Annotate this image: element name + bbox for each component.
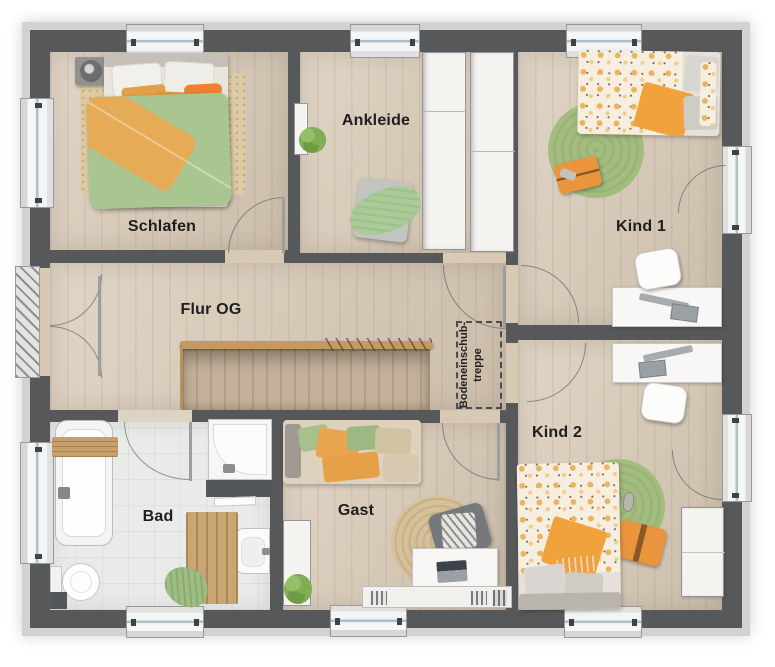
kind2-dresser [681, 507, 724, 597]
stair-railing-left [180, 345, 183, 410]
door-opening-bad [118, 410, 192, 422]
room-label-ankleide: Ankleide [342, 112, 410, 130]
bed-pillow-dotted [699, 62, 716, 126]
ankleide-plant [299, 127, 326, 153]
books [371, 591, 387, 605]
door-leaf-ankleide [503, 266, 506, 328]
french-balcony-hatch [15, 266, 40, 378]
schlafen-duvet [86, 93, 232, 210]
bed-throw-orange [322, 451, 380, 483]
attic-hatch-label-line2: treppe [471, 319, 485, 411]
window-ankleide-top [350, 24, 420, 58]
desk-laptop [436, 560, 467, 583]
door-opening-kind1 [506, 265, 518, 323]
room-label-flur: Flur OG [181, 301, 242, 319]
bath-dark-mat [50, 592, 67, 609]
door-leaf-bad [189, 422, 192, 481]
door-leaf-schlafen [282, 197, 285, 253]
kind2-single-bed [517, 462, 622, 610]
kind1-desk [612, 287, 722, 327]
kind2-chair [640, 381, 689, 425]
schlafen-lamp [80, 60, 102, 82]
gast-sideboard [362, 586, 512, 608]
armchair-throw [441, 512, 477, 549]
attic-hatch-box: Bodeneinschub- treppe [456, 321, 502, 409]
desk-laptop [670, 303, 699, 323]
room-label-schlafen: Schlafen [128, 218, 196, 236]
attic-hatch-label: Bodeneinschub- treppe [457, 319, 501, 411]
books [409, 590, 429, 606]
gast-bed [283, 420, 421, 484]
room-label-bad: Bad [143, 508, 174, 526]
stair-railing-balusters [322, 338, 432, 351]
desk-monitor [643, 345, 693, 362]
bathtub-tray [52, 437, 118, 457]
door-leaf-french [98, 276, 101, 376]
window-schlafen-left [20, 98, 54, 208]
duvet-orange-band [86, 93, 199, 194]
room-label-kind1: Kind 1 [616, 218, 666, 236]
door-opening-gast [440, 410, 500, 423]
sink-faucet [262, 548, 270, 555]
door-opening-french [40, 268, 50, 376]
window-gast-bottom [330, 605, 407, 637]
room-label-gast: Gast [338, 502, 374, 520]
books [493, 590, 507, 606]
kind1-single-bed [577, 50, 720, 136]
stairwell-void [182, 349, 430, 410]
window-kind1-right [722, 146, 752, 234]
door-opening-ankleide [443, 253, 506, 263]
bed-duvet-fold [383, 454, 419, 482]
shower-partition-wall [206, 480, 273, 497]
books [471, 591, 487, 605]
kind1-chair [633, 246, 683, 291]
shower-tray [213, 424, 267, 475]
shower [208, 419, 272, 480]
gast-plant [284, 574, 312, 604]
desk-laptop [638, 360, 667, 379]
bed-headboard [519, 592, 621, 610]
ankleide-wardrobe [422, 52, 466, 250]
sink [234, 528, 270, 574]
shower-faucet [223, 464, 235, 473]
window-kind2-right [722, 414, 752, 502]
bathtub [55, 420, 113, 546]
attic-hatch-label-line1: Bodeneinschub- [457, 319, 471, 411]
window-bad-bottom [126, 606, 204, 638]
toilet-bowl [62, 563, 100, 601]
door-leaf-gast [497, 423, 500, 481]
bed-pillow-khaki [374, 427, 411, 455]
window-kind2-bottom [564, 606, 642, 638]
window-bad-left [20, 442, 54, 564]
kind2-desk [612, 343, 722, 383]
ankleide-wardrobe [470, 52, 514, 252]
towel-rail [214, 496, 256, 506]
floor-plan: Bodeneinschub- treppe [0, 0, 775, 667]
door-opening-kind2 [506, 343, 518, 403]
bathtub-faucet [58, 487, 70, 499]
room-label-kind2: Kind 2 [532, 424, 582, 442]
